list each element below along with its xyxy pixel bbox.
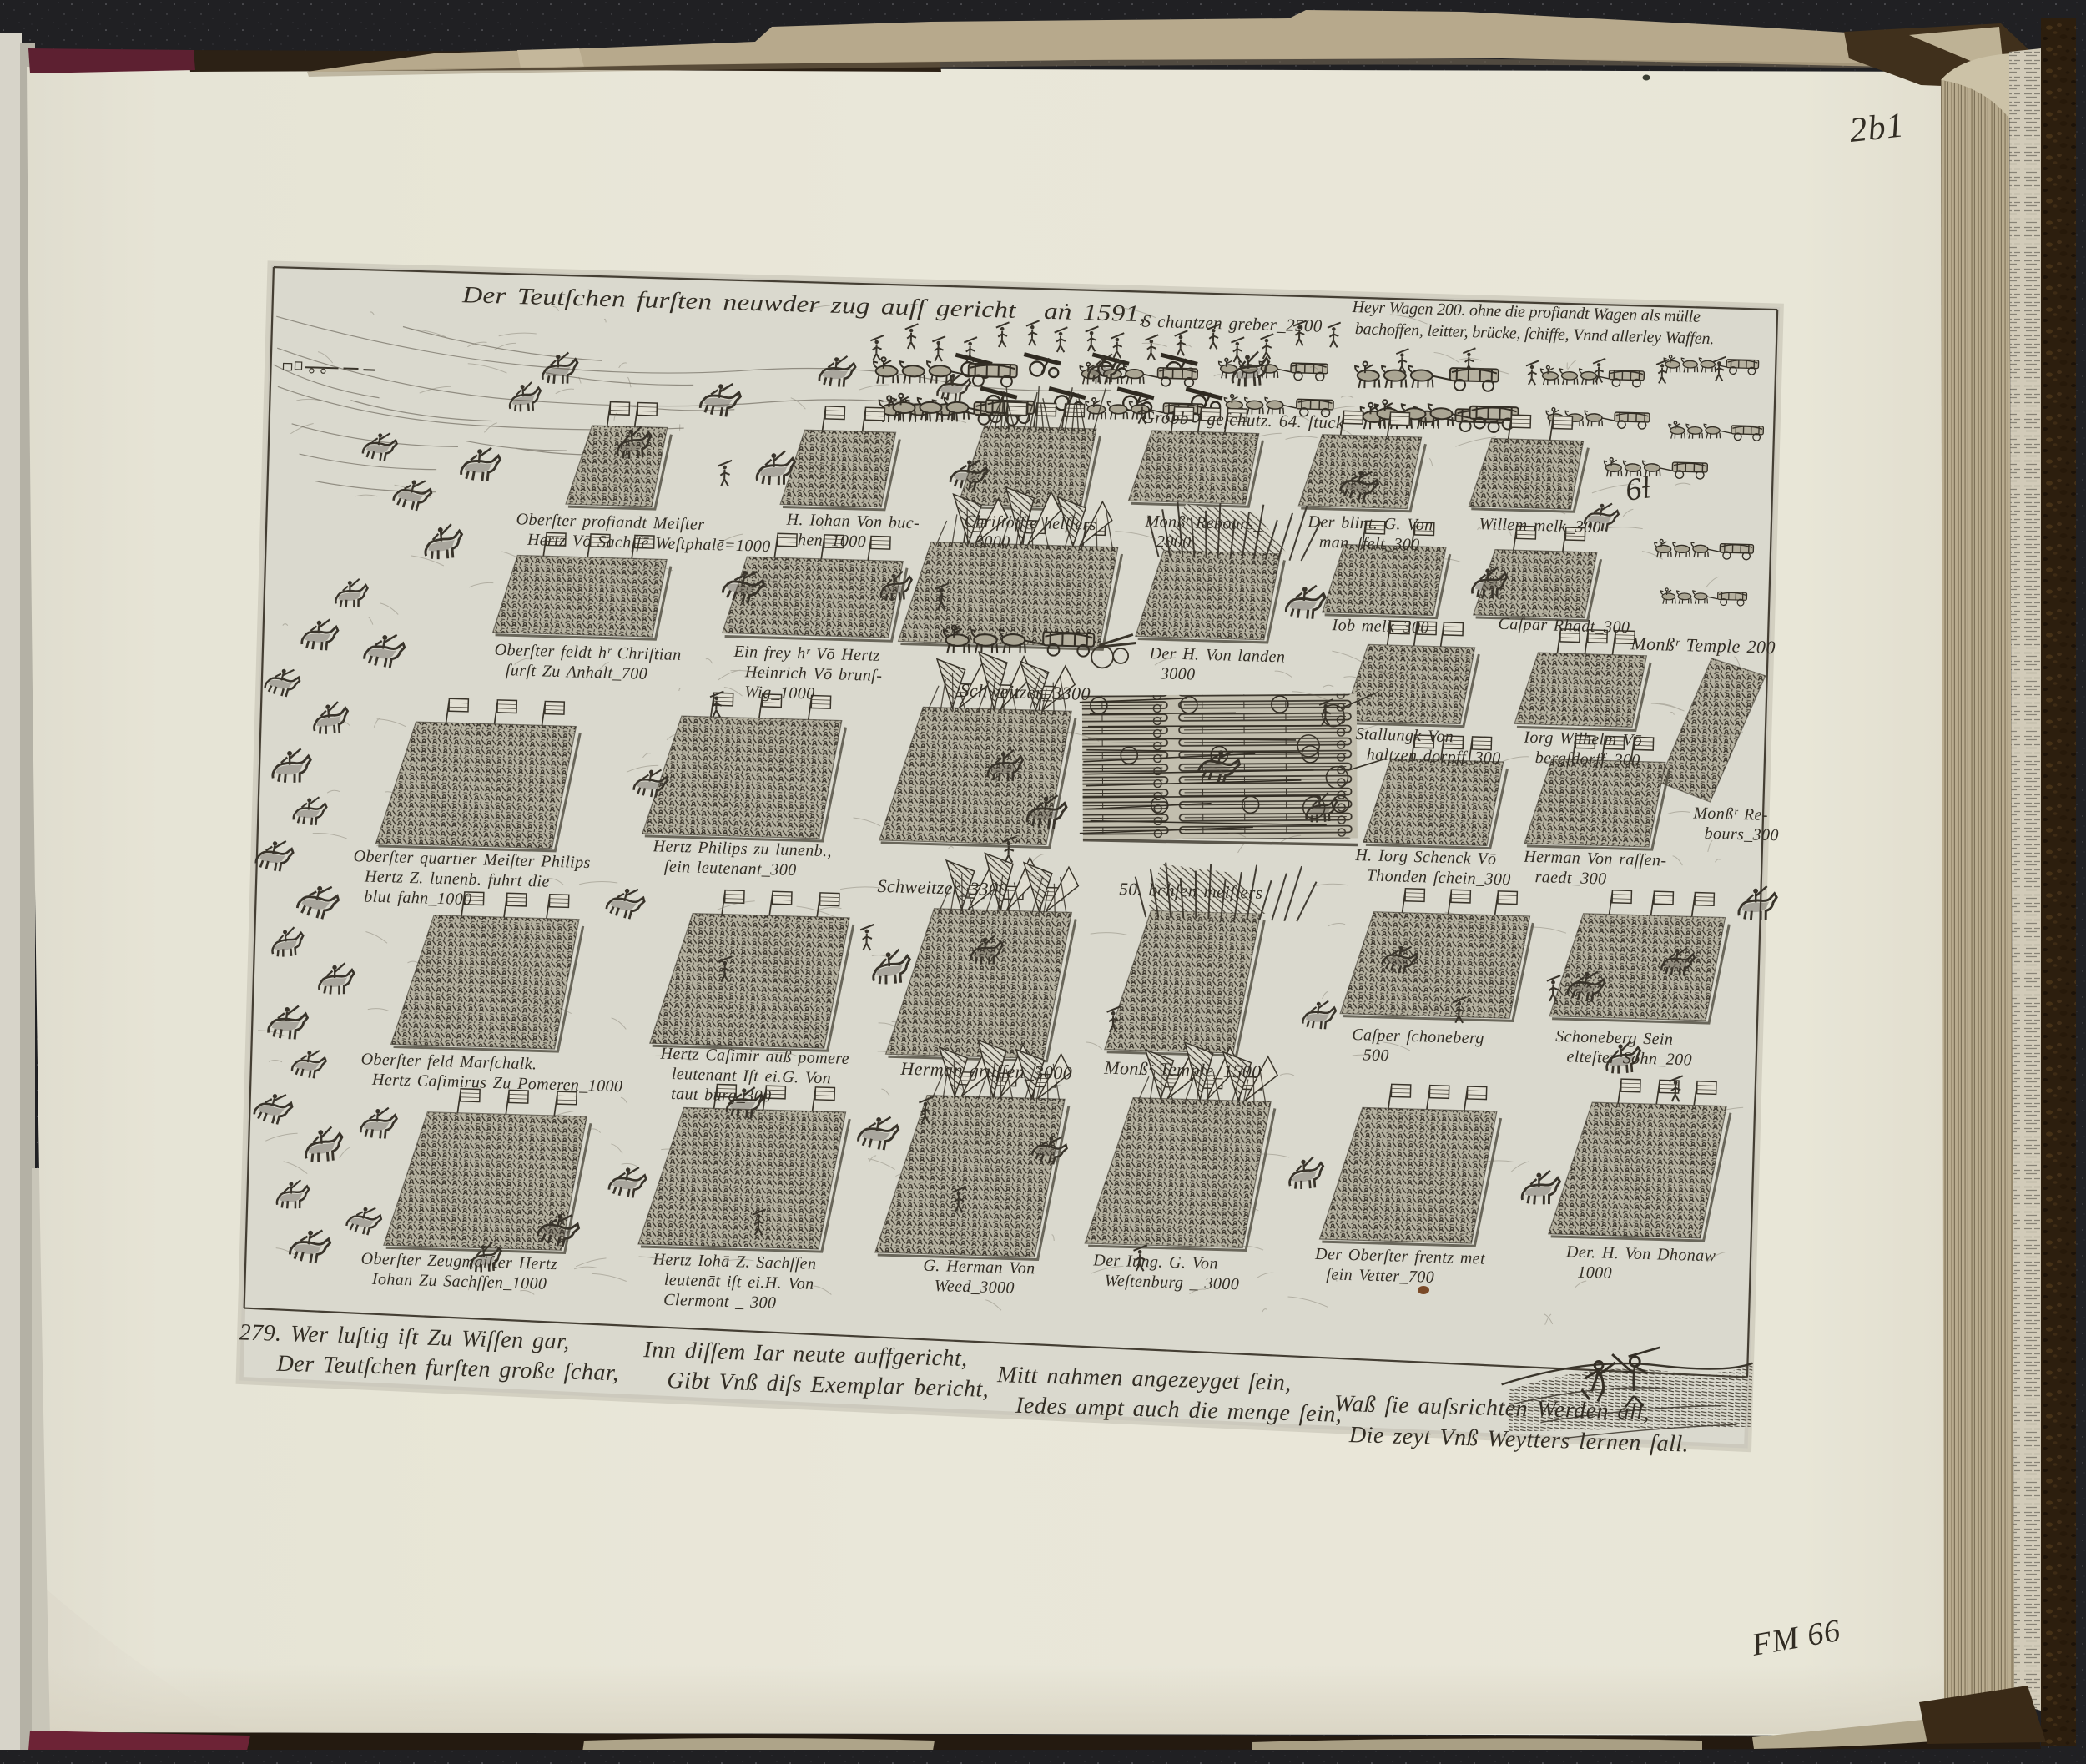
svg-text:Schweitzer_3300: Schweitzer_3300 — [960, 680, 1091, 704]
svg-text:50. bchſen meiſters: 50. bchſen meiſters — [1119, 879, 1263, 903]
svg-text:2b1: 2b1 — [1847, 106, 1906, 150]
svg-text:Monßʳ Temple_1500: Monßʳ Temple_1500 — [1103, 1057, 1262, 1082]
svg-text:Caſpar Rhadt_300: Caſpar Rhadt_300 — [1498, 615, 1630, 637]
svg-text:6ƚ: 6ƚ — [1623, 470, 1653, 508]
svg-text:Willem melk_300: Willem melk_300 — [1479, 515, 1601, 537]
svg-text:Iob melk_300: Iob melk_300 — [1331, 616, 1429, 637]
svg-text:Schweitzer_3300: Schweitzer_3300 — [877, 875, 1008, 900]
svg-text:Monßʳ Temple 200: Monßʳ Temple 200 — [1630, 633, 1776, 658]
